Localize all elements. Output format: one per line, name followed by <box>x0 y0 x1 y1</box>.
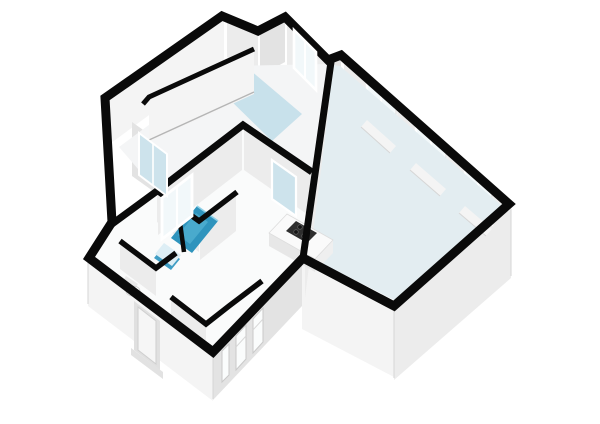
floorplan-3d-render <box>0 0 600 424</box>
floorplan-stage <box>0 0 600 424</box>
